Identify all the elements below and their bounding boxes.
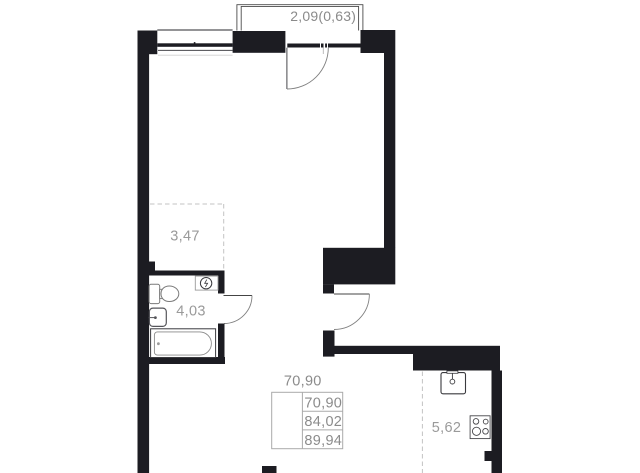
- svg-text:70,90: 70,90: [284, 373, 322, 389]
- svg-text:70,90: 70,90: [304, 396, 342, 412]
- svg-text:89,94: 89,94: [304, 433, 342, 449]
- svg-text:4,03: 4,03: [176, 304, 205, 320]
- svg-text:84,02: 84,02: [304, 414, 342, 430]
- svg-text:2,09(0,63): 2,09(0,63): [290, 8, 356, 24]
- svg-text:3,47: 3,47: [170, 229, 199, 245]
- svg-text:5,62: 5,62: [432, 420, 461, 436]
